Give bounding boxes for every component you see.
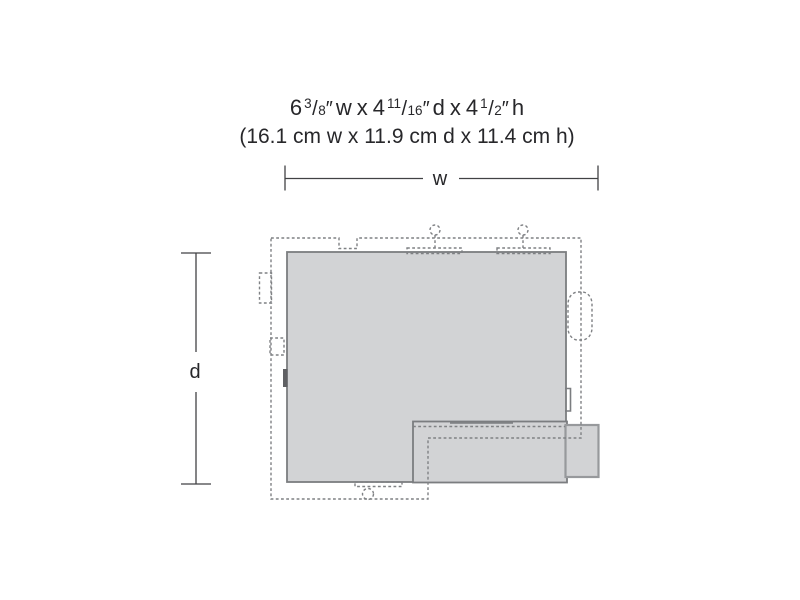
chimney-circle-left (430, 225, 440, 235)
footprint-shapes (283, 252, 599, 483)
roof-bump-right (568, 292, 592, 340)
width-dim-label: w (432, 168, 448, 190)
door-mark (283, 369, 288, 387)
depth-dim-label: d (189, 361, 200, 383)
chimney-circle-right (518, 225, 528, 235)
width-dimension: w (285, 166, 598, 191)
footprint-diagram: w d (0, 0, 800, 600)
side-block (566, 425, 599, 477)
depth-dimension: d (181, 253, 211, 484)
roof-circle-bottom (363, 489, 374, 500)
porch-footprint (413, 422, 567, 483)
roof-tab-left-inner (270, 338, 284, 355)
roof-tab-left (260, 273, 272, 303)
